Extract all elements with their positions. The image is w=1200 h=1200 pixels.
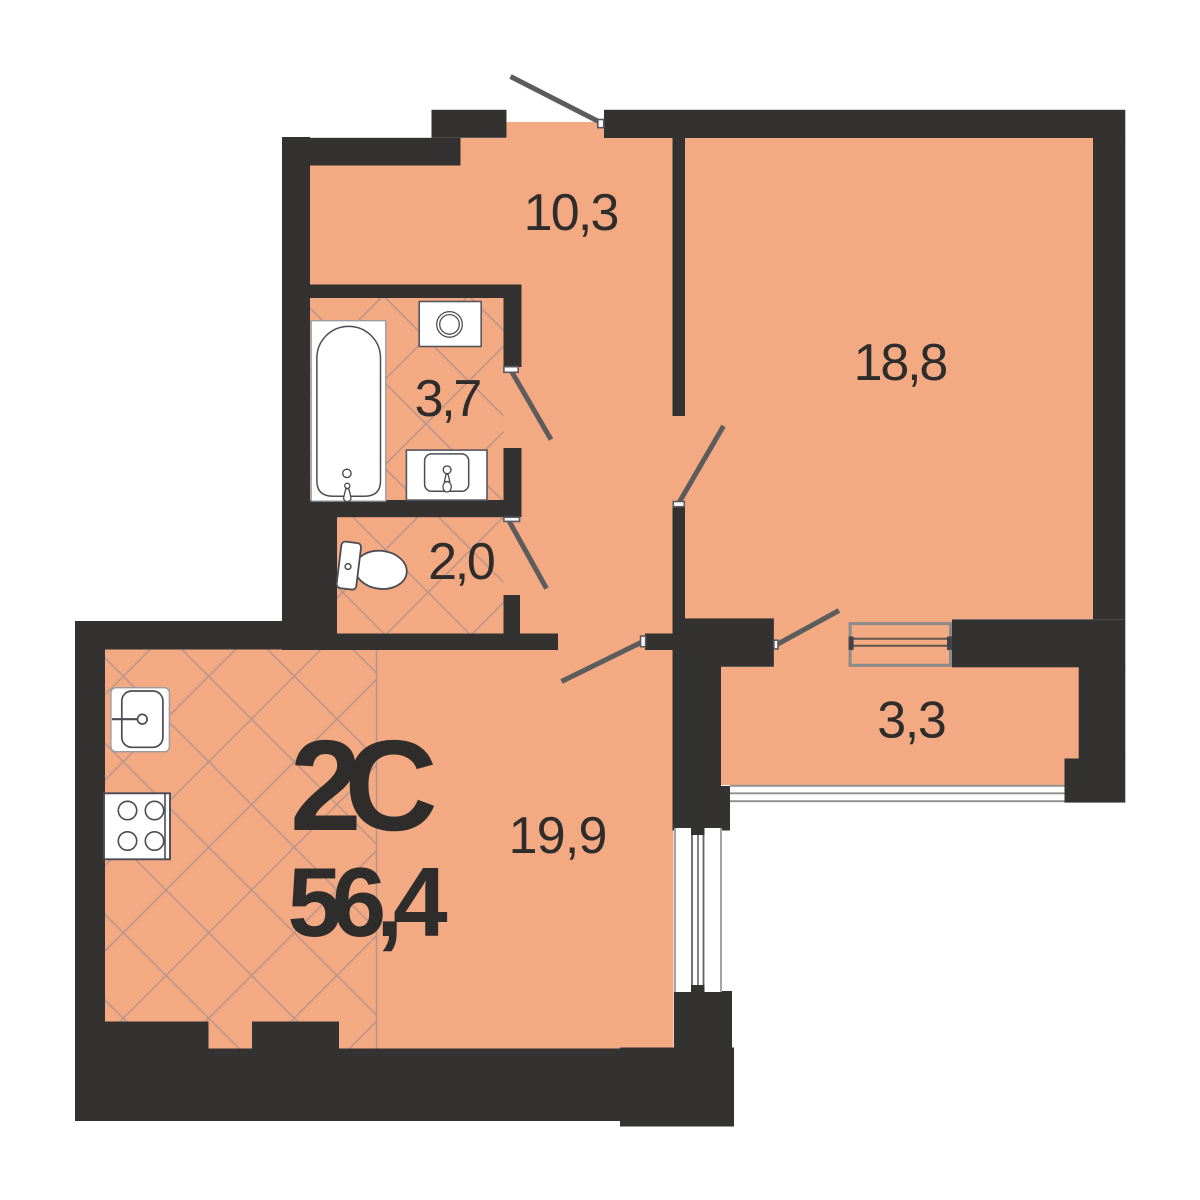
svg-text:56,4: 56,4: [287, 847, 447, 957]
svg-text:3,7: 3,7: [415, 370, 483, 428]
svg-text:19,9: 19,9: [509, 807, 608, 865]
svg-text:10,3: 10,3: [524, 184, 620, 242]
svg-text:3,3: 3,3: [877, 692, 947, 750]
svg-text:2C: 2C: [290, 714, 438, 858]
svg-text:2,0: 2,0: [428, 533, 496, 591]
svg-text:18,8: 18,8: [854, 334, 949, 392]
